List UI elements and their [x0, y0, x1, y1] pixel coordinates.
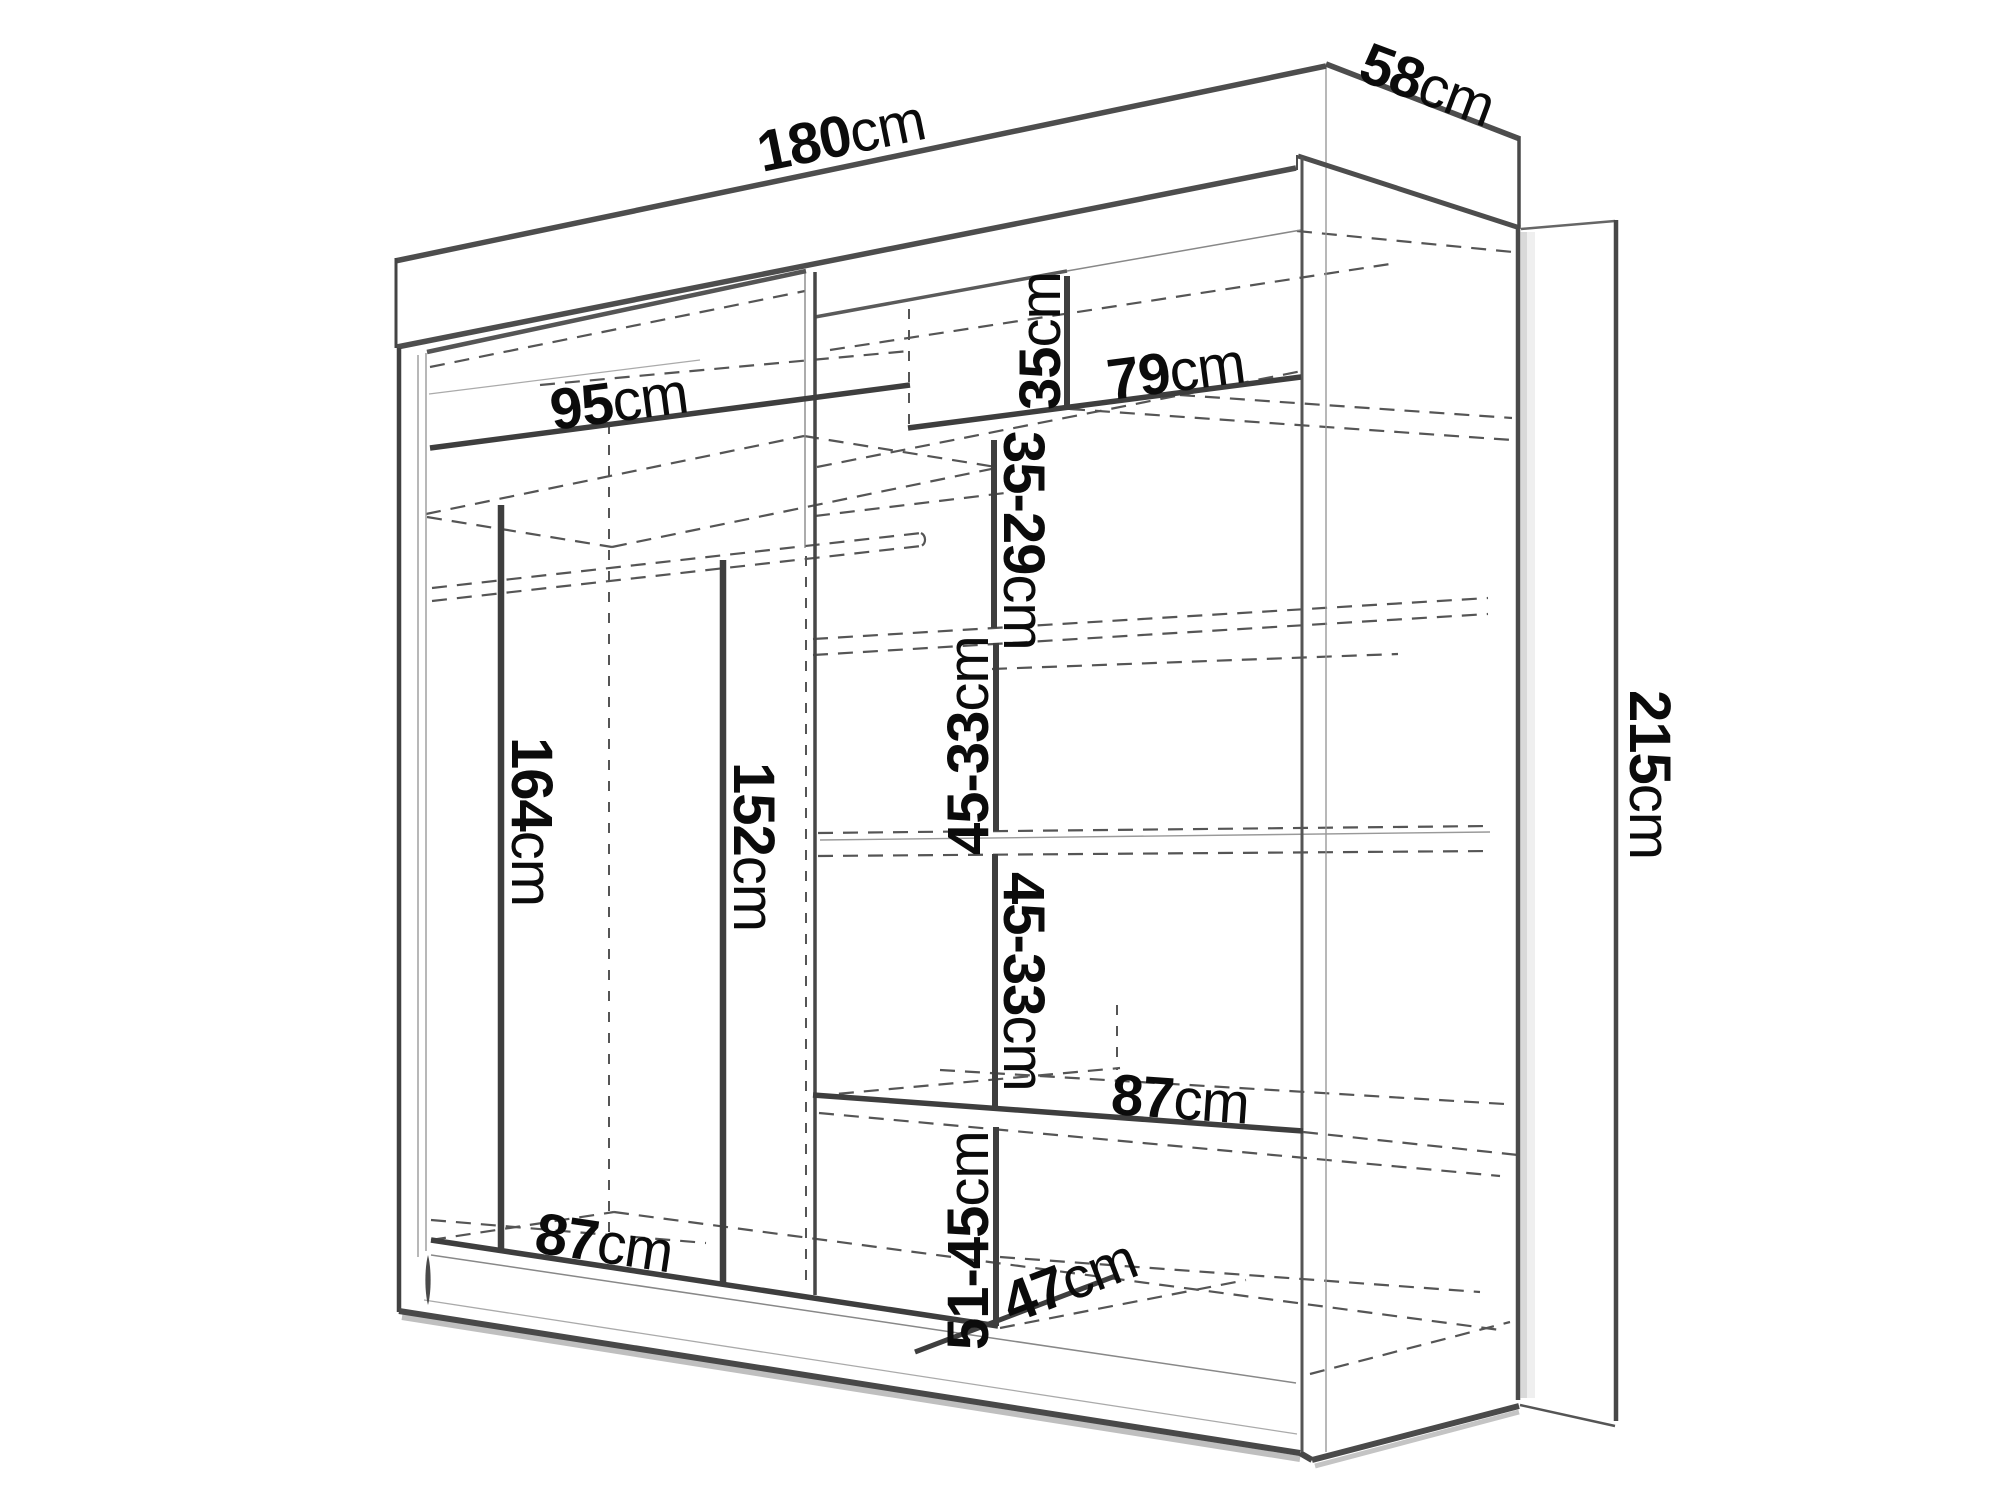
- svg-text:35-29cm: 35-29cm: [991, 431, 1056, 650]
- svg-text:215cm: 215cm: [1617, 690, 1682, 859]
- svg-text:164cm: 164cm: [499, 737, 564, 906]
- svg-text:45-33cm: 45-33cm: [936, 636, 1001, 855]
- svg-text:152cm: 152cm: [721, 762, 786, 931]
- svg-text:45-33cm: 45-33cm: [991, 872, 1056, 1091]
- svg-text:51-45cm: 51-45cm: [936, 1131, 1001, 1350]
- svg-text:35cm: 35cm: [1008, 272, 1073, 410]
- svg-text:87cm: 87cm: [1109, 1062, 1251, 1136]
